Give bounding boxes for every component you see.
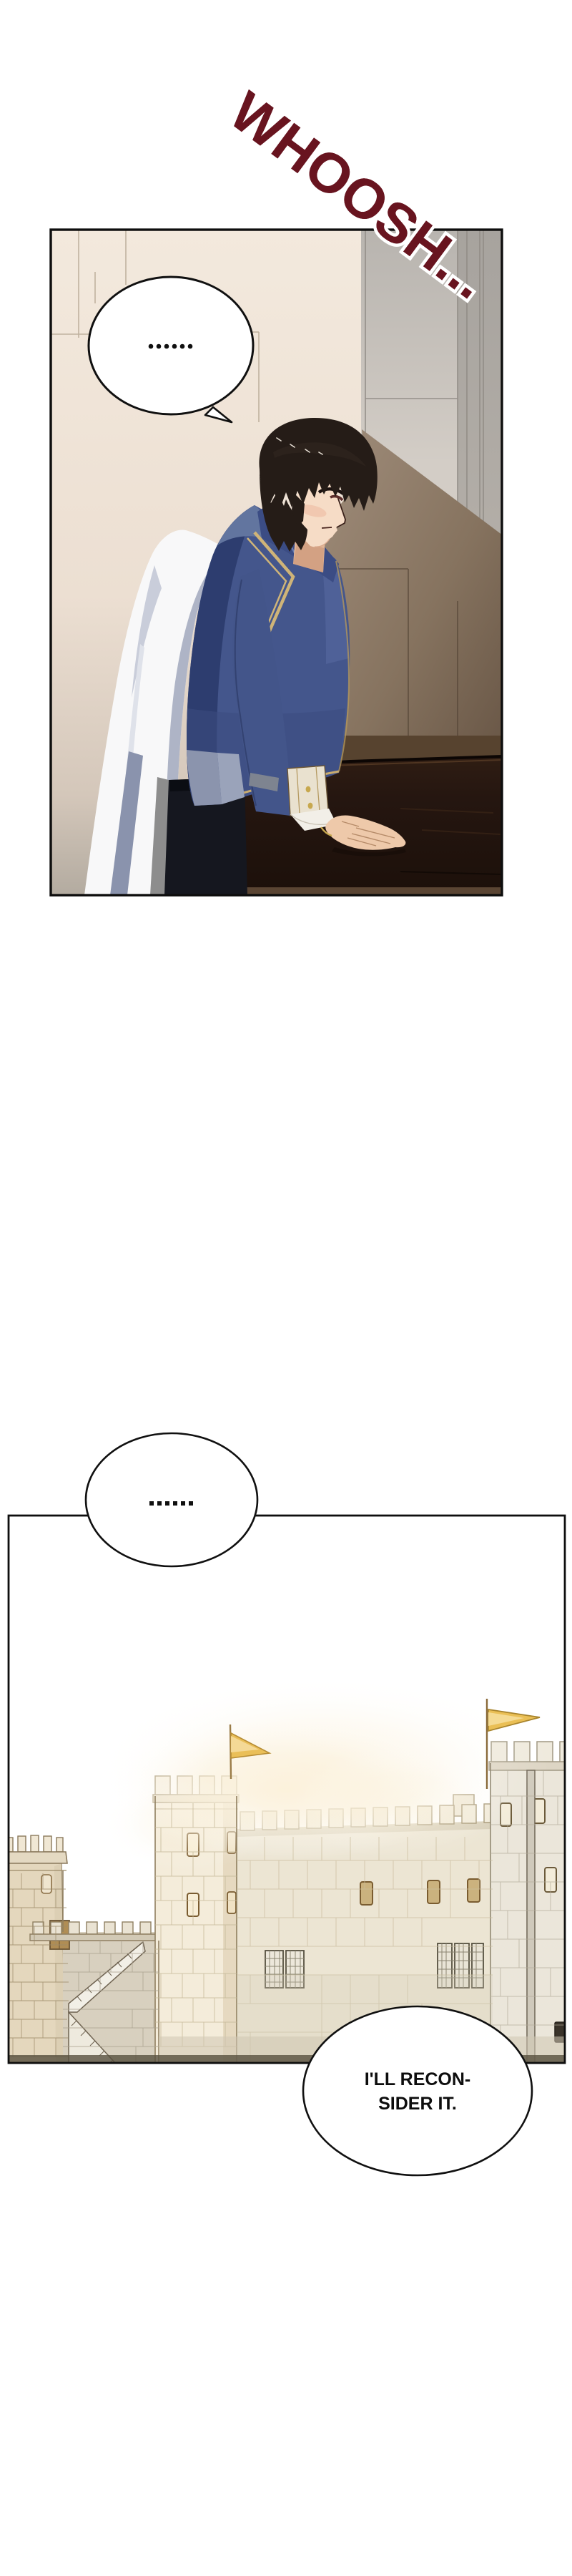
svg-text:SIDER IT.: SIDER IT. [378,2094,457,2114]
svg-text:I'LL RECON-: I'LL RECON- [365,2069,471,2089]
